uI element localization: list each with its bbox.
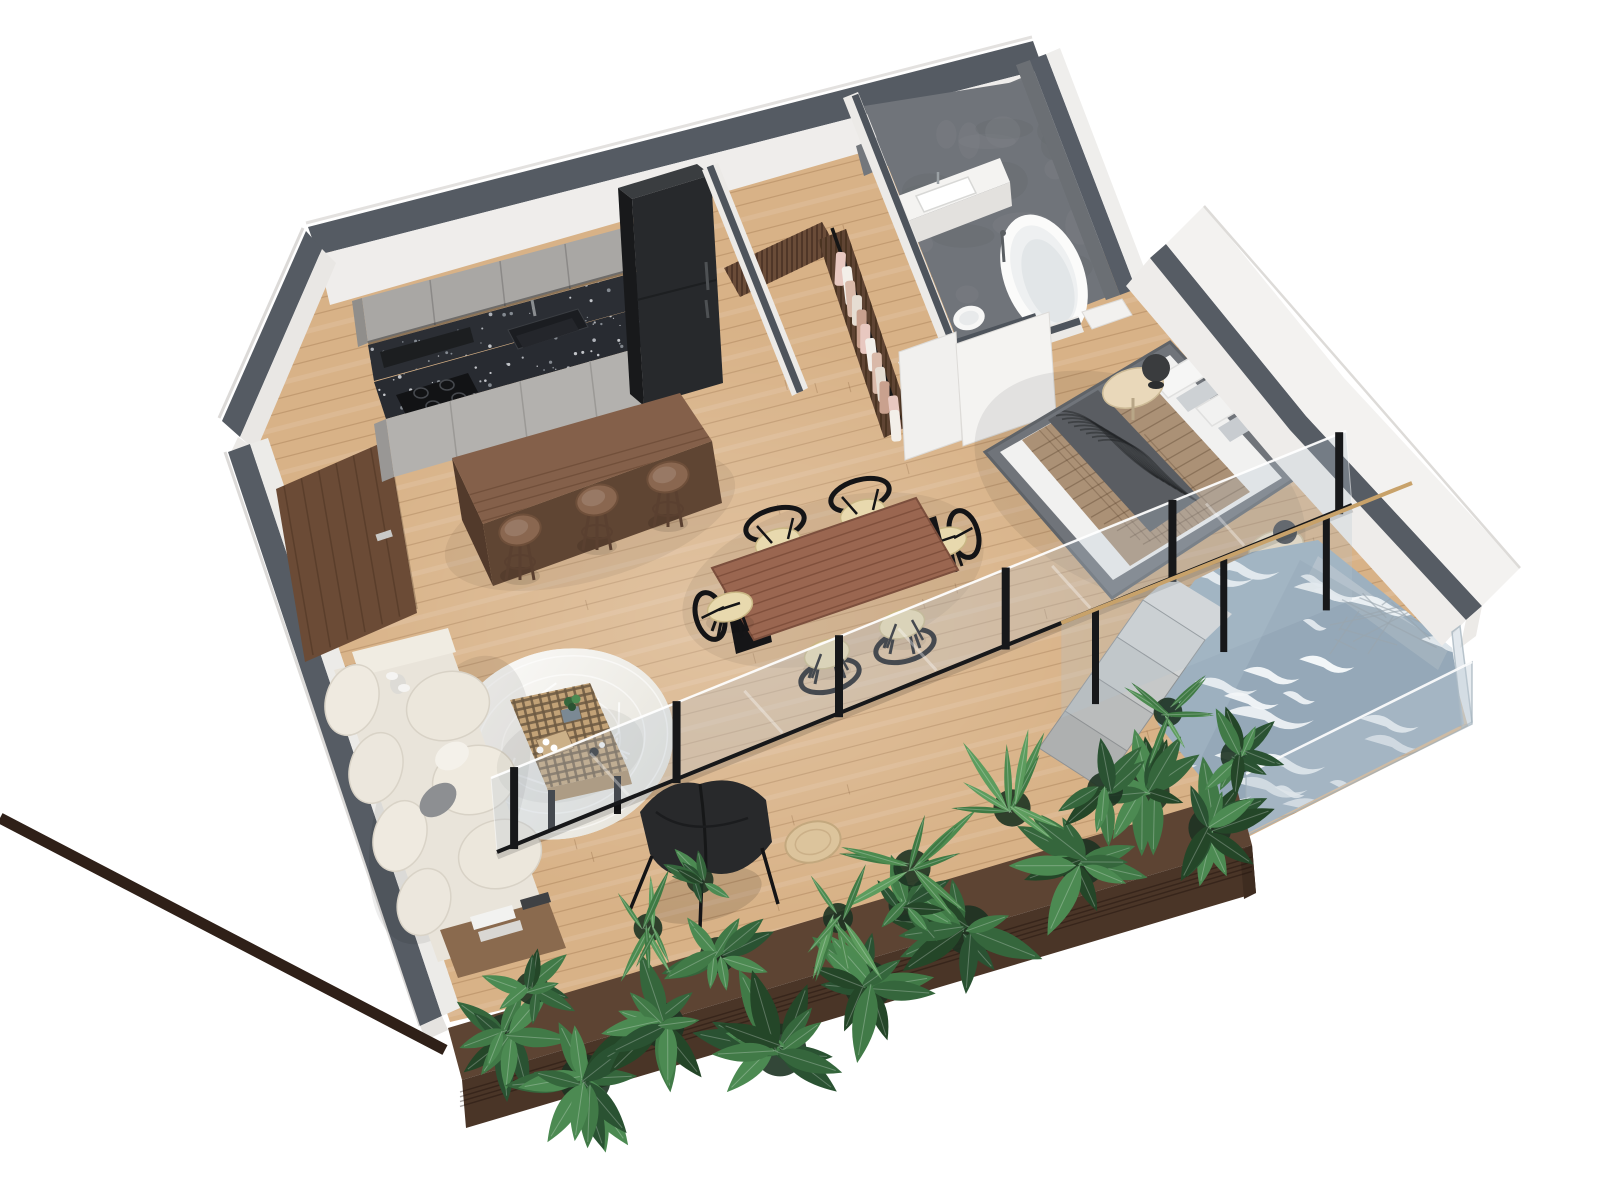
floorplan-canvas	[0, 0, 1600, 1200]
sphere-lamp	[1142, 354, 1170, 382]
sliding-panel-1	[899, 332, 962, 460]
apartment-3d-floor-plan	[0, 0, 1600, 1200]
slipper	[386, 672, 398, 680]
refrigerator	[618, 164, 723, 406]
tub-faucet	[1002, 234, 1004, 262]
slipper	[398, 684, 410, 692]
